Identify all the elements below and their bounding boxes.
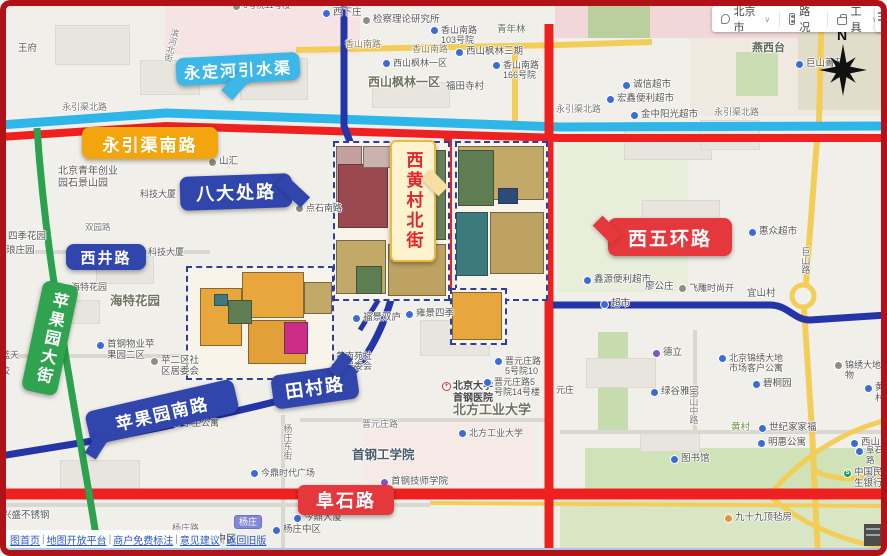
callout-xihuangcun-beijie: 西黄村北街 bbox=[390, 140, 436, 262]
map-canvas[interactable]: 6号院11号楼王府滨河北街西下庄检察理论研究所香山南路香山南路香山南路 103号… bbox=[0, 0, 887, 556]
traffic-label: 路况 bbox=[799, 3, 817, 35]
footer-link[interactable]: 意见建议 bbox=[180, 532, 220, 547]
briefcase-icon bbox=[837, 17, 847, 25]
footer-link[interactable]: 返回旧版 bbox=[226, 532, 266, 547]
callout-fushi-road: 阜石路 bbox=[298, 485, 394, 515]
city-label: 北京市 bbox=[734, 3, 761, 35]
link-separator: | bbox=[109, 534, 112, 545]
roads-layer bbox=[0, 0, 887, 556]
toolbar-fragment[interactable] bbox=[875, 6, 887, 32]
footer-link[interactable]: 地图开放平台 bbox=[47, 532, 107, 547]
road-tiancun-east bbox=[553, 305, 887, 320]
yellow-roads bbox=[296, 0, 887, 556]
callout-xijing-road: 西井路 bbox=[66, 244, 146, 270]
link-separator: | bbox=[222, 534, 225, 545]
footer-link[interactable]: 商户免费标注 bbox=[113, 532, 173, 547]
footer-links-bar: 图首页|地图开放平台|商户免费标注|意见建议|返回旧版 bbox=[6, 530, 220, 548]
bottom-edge-line bbox=[0, 548, 887, 551]
callout-badachu-road: 八大处路 bbox=[179, 173, 292, 211]
footer-link[interactable]: 图首页 bbox=[10, 532, 40, 547]
callout-yongyinqu-nanlu: 永引渠南路 bbox=[82, 127, 218, 159]
city-icon bbox=[721, 14, 730, 24]
link-separator: | bbox=[175, 534, 178, 545]
scale-widget-fragment bbox=[864, 524, 882, 546]
map-toolbar: 北京市 ∨ 路况 工具 ∨ bbox=[712, 6, 887, 32]
traffic-light-icon bbox=[789, 13, 795, 25]
link-separator: | bbox=[42, 534, 45, 545]
city-selector[interactable]: 北京市 ∨ bbox=[712, 6, 779, 32]
callout-xiwuhuan-road: 西五环路 bbox=[608, 218, 732, 256]
traffic-button[interactable]: 路况 bbox=[780, 6, 827, 32]
chevron-down-icon: ∨ bbox=[764, 15, 770, 24]
tools-label: 工具 bbox=[851, 3, 869, 35]
compass-rose: N bbox=[815, 24, 875, 125]
